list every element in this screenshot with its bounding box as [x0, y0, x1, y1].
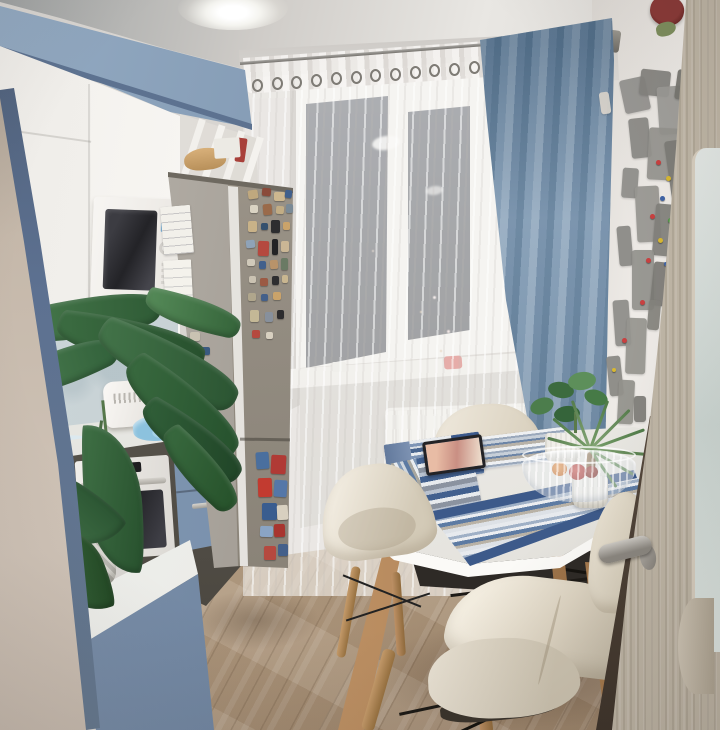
fridge-note-sheet — [160, 205, 194, 255]
kettle-vent — [113, 391, 148, 403]
fridge-note-sheet — [163, 259, 193, 300]
plant-pot-small — [106, 522, 130, 554]
microwave-door — [103, 209, 158, 291]
door-wood-curve — [678, 598, 714, 694]
kitchen-scene — [0, 0, 720, 730]
cabinet-seam-2 — [88, 84, 90, 322]
door-glass — [692, 148, 720, 652]
fruit-bowl-rim — [522, 446, 636, 464]
kettle-dial — [156, 396, 169, 409]
fridge-magnet — [179, 351, 187, 359]
fridge-top-box — [213, 137, 240, 159]
